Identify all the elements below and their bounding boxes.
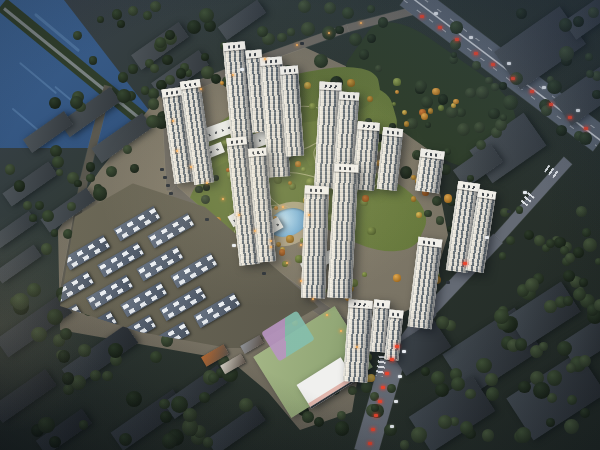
car <box>262 272 266 275</box>
street-light <box>254 230 256 232</box>
car <box>385 372 389 375</box>
car <box>507 62 511 65</box>
street-light <box>238 214 240 216</box>
car <box>166 184 170 187</box>
car <box>368 442 372 445</box>
car <box>371 428 375 431</box>
car <box>160 168 164 171</box>
traffic-lights-layer <box>0 0 600 450</box>
car <box>463 262 467 265</box>
car <box>530 90 534 93</box>
car <box>491 63 495 66</box>
car <box>205 218 209 221</box>
street-light <box>232 74 234 76</box>
street-light <box>308 214 310 216</box>
car <box>438 26 442 29</box>
car <box>402 350 406 353</box>
street-light <box>206 182 208 184</box>
car <box>300 42 304 45</box>
car <box>374 414 378 417</box>
street-light <box>300 244 302 246</box>
street-light <box>340 330 342 332</box>
street-light <box>356 346 358 348</box>
car <box>390 358 394 361</box>
car <box>163 176 167 179</box>
car <box>378 400 382 403</box>
street-light <box>300 280 302 282</box>
car <box>390 425 394 428</box>
car <box>434 12 438 15</box>
aerial-development-rendering <box>0 0 600 450</box>
street-light <box>264 58 266 60</box>
street-light <box>200 88 202 90</box>
street-light <box>360 22 362 24</box>
car <box>395 345 399 348</box>
car <box>474 52 478 55</box>
car <box>398 375 402 378</box>
street-light <box>270 240 272 242</box>
car <box>469 36 473 39</box>
car <box>549 103 553 106</box>
street-light <box>222 198 224 200</box>
car <box>169 192 173 195</box>
car <box>584 127 588 130</box>
car <box>576 109 580 112</box>
street-light <box>286 262 288 264</box>
car <box>568 116 572 119</box>
car <box>446 281 450 284</box>
car <box>485 236 489 239</box>
street-light <box>172 120 174 122</box>
street-light <box>270 246 272 248</box>
street-light <box>176 150 178 152</box>
car <box>455 38 459 41</box>
car <box>232 244 236 247</box>
street-light <box>296 44 298 46</box>
street-light <box>190 166 192 168</box>
car <box>507 210 511 213</box>
car <box>240 68 244 71</box>
car <box>394 400 398 403</box>
street-light <box>282 206 284 208</box>
car <box>381 386 385 389</box>
street-light <box>312 298 314 300</box>
car <box>542 86 546 89</box>
street-light <box>326 314 328 316</box>
car <box>523 191 527 194</box>
car <box>420 15 424 18</box>
street-light <box>328 32 330 34</box>
car <box>511 77 515 80</box>
